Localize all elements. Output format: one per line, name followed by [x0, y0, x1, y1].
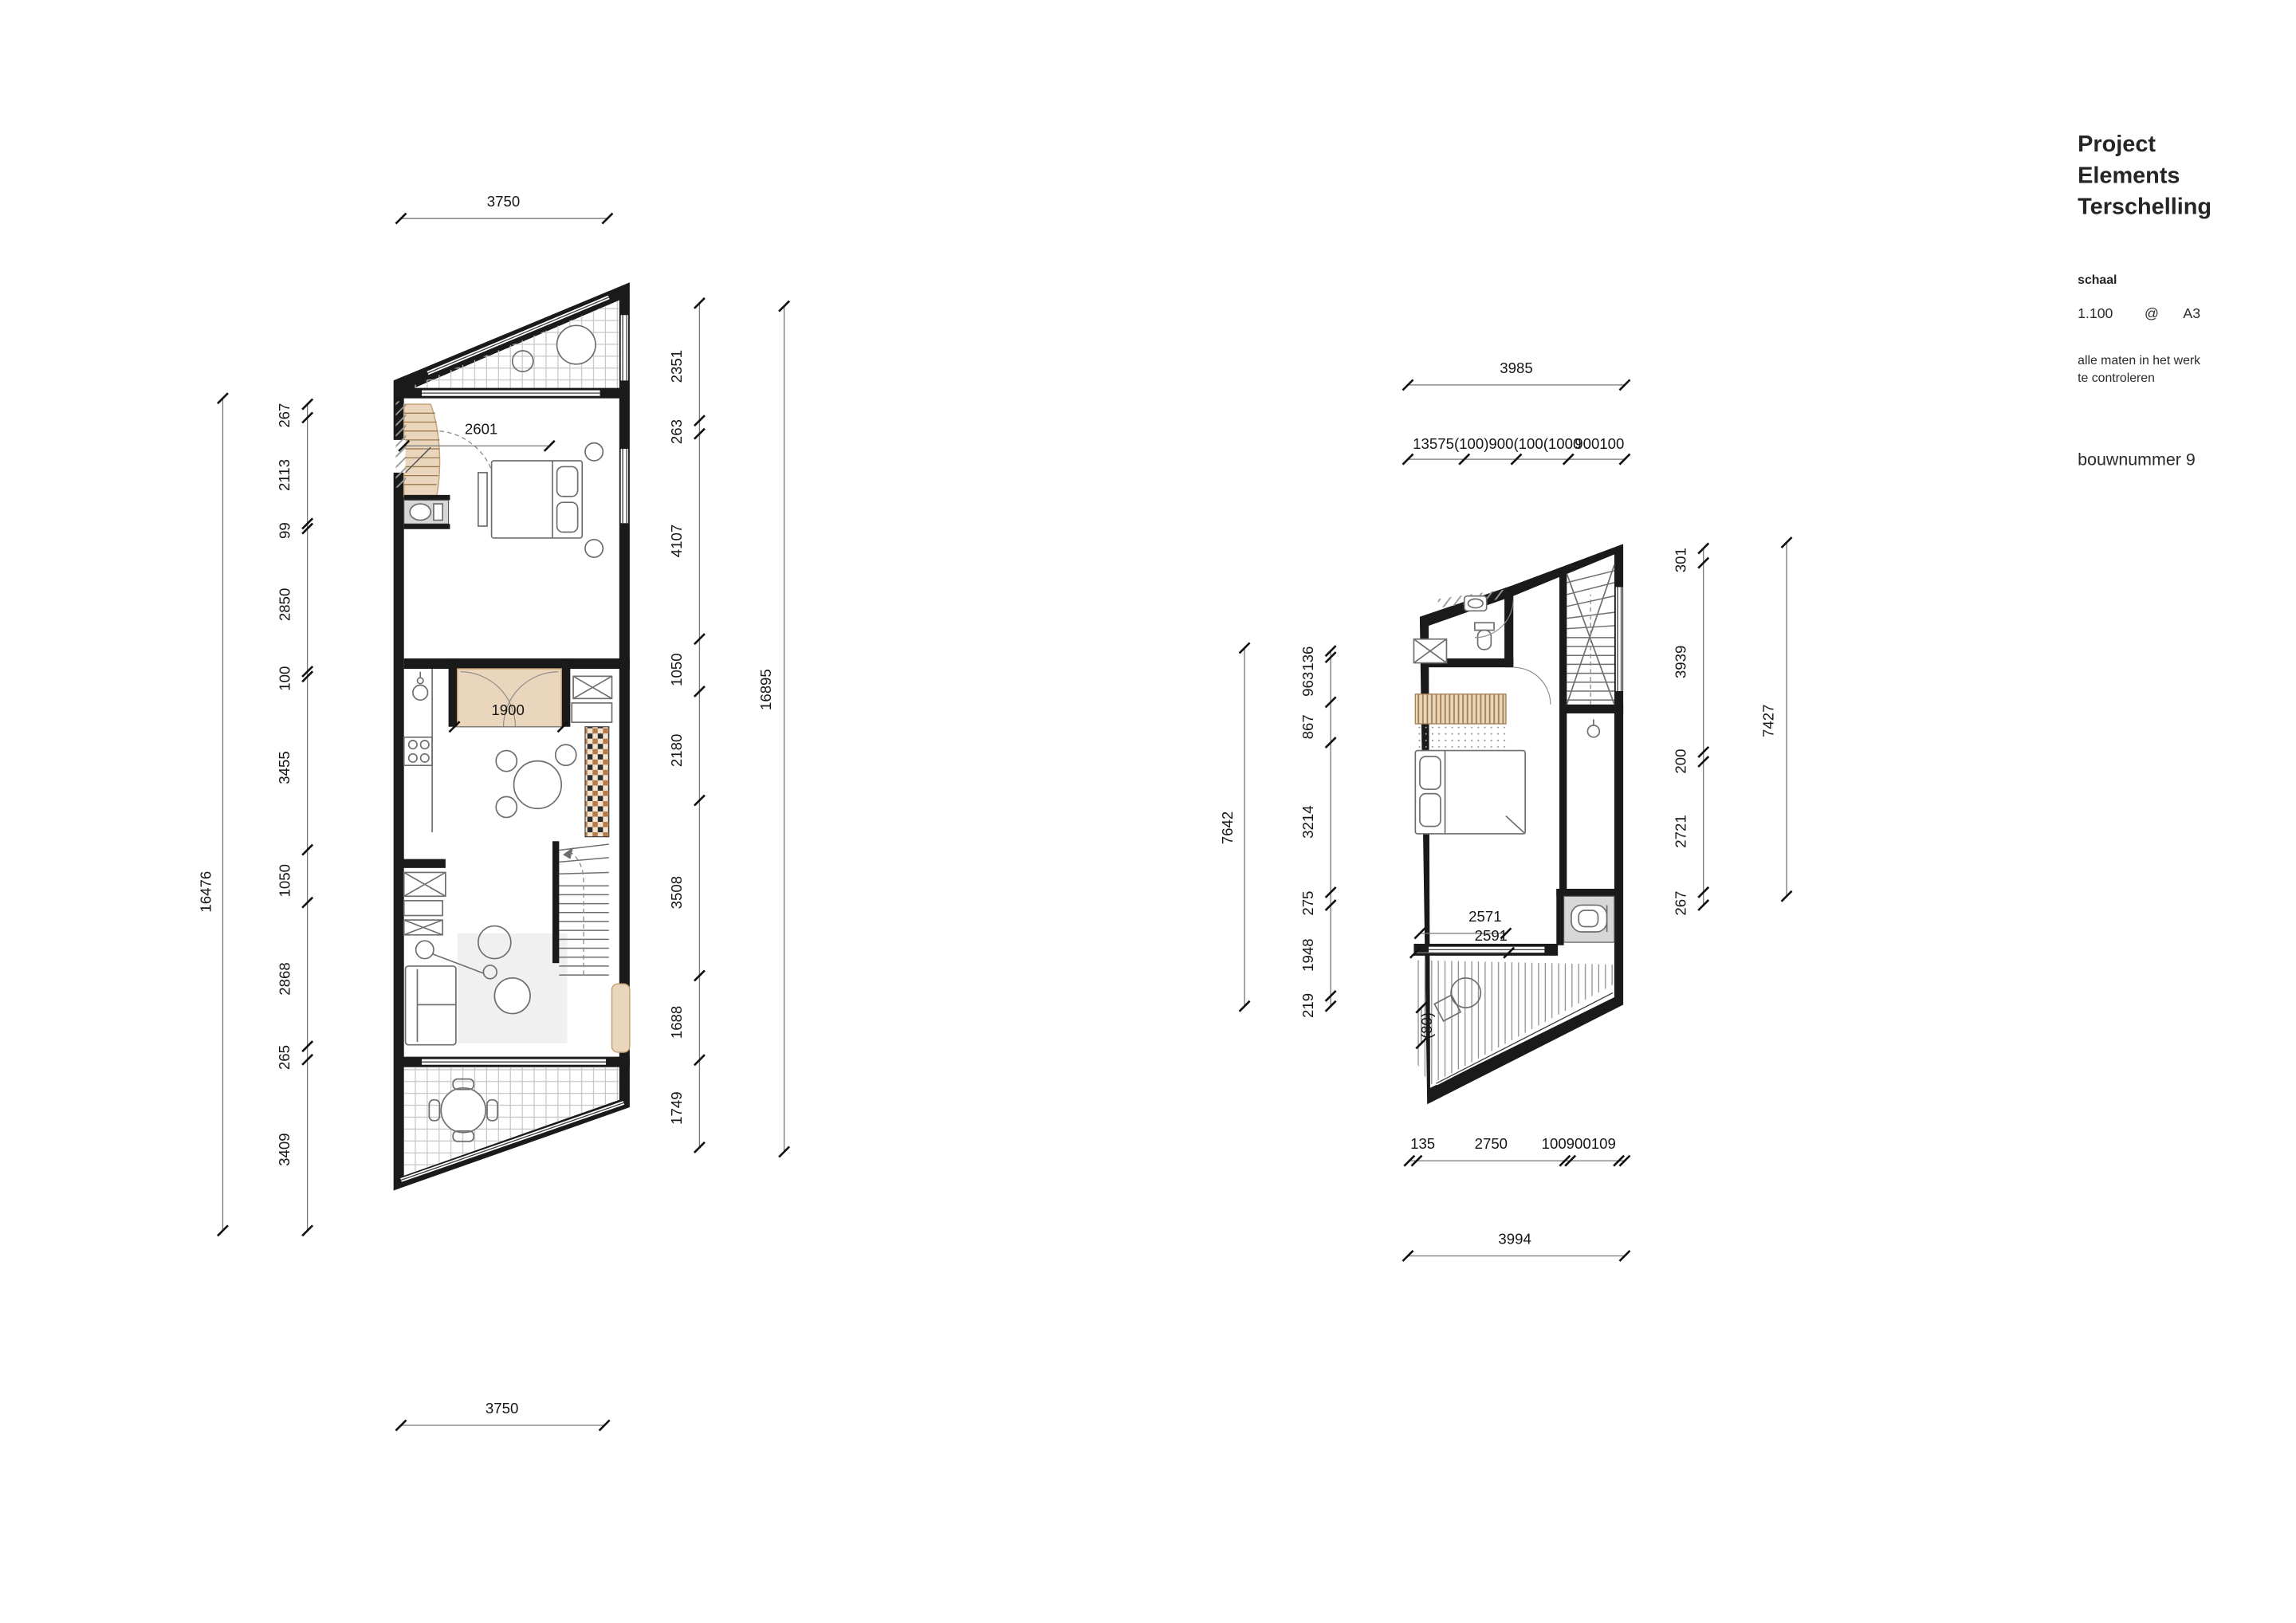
- project-title-line2: Elements: [2078, 163, 2180, 188]
- rug: [1415, 727, 1507, 748]
- dim-label: 200: [1672, 749, 1689, 773]
- drawing-sheet: 3750375016476267211399285010034551050286…: [0, 0, 2296, 1623]
- balcony-table: [557, 325, 596, 364]
- scale-label: schaal: [2078, 273, 2117, 287]
- bedroom-wall: [404, 658, 630, 669]
- title-block: Project Elements Terschelling schaal 1.1…: [2078, 132, 2211, 469]
- project-title-line1: Project: [2078, 132, 2156, 157]
- dim-label: 13575(100)900(100(1000: [1413, 435, 1581, 452]
- dim-label: 3994: [1498, 1231, 1531, 1248]
- floorplan-drawing: 3750375016476267211399285010034551050286…: [0, 0, 2296, 1623]
- toilet: [1478, 631, 1492, 650]
- dim-label: 1688: [668, 1006, 685, 1039]
- dim-label: 2721: [1672, 815, 1689, 847]
- dim-label: 1050: [668, 653, 685, 686]
- dim-label: 2351: [668, 350, 685, 383]
- dim-label: 2180: [668, 734, 685, 767]
- dim-label: (80): [1418, 1012, 1435, 1039]
- dim-label: 2750: [1475, 1135, 1508, 1152]
- dim-label: 275: [1299, 891, 1316, 916]
- dim-label: 1900: [491, 701, 524, 718]
- side-table: [585, 540, 603, 557]
- cupboard: [612, 984, 630, 1052]
- bathroom-wall: [1504, 591, 1513, 667]
- dim-label: 135: [1410, 1135, 1435, 1152]
- dim-label: 100: [276, 666, 293, 691]
- dim-label: 136: [1299, 646, 1316, 671]
- dim-label: 2571: [1468, 908, 1501, 925]
- dim-label: 3455: [276, 751, 293, 784]
- dim-label: 900100: [1575, 435, 1624, 452]
- mosaic-strip: [585, 727, 609, 837]
- closet-wall: [1559, 713, 1567, 894]
- pillow: [1420, 794, 1441, 827]
- dining-table: [514, 761, 562, 809]
- dim-label: 219: [1299, 993, 1316, 1018]
- cabinet-box: [404, 901, 442, 916]
- dim-label: 100900109: [1542, 1135, 1616, 1152]
- side-table: [585, 443, 603, 461]
- dim-label: 267: [276, 403, 293, 428]
- dim-label: 16895: [757, 669, 774, 710]
- dim-label: 3939: [1672, 646, 1689, 678]
- dim-label: 1050: [276, 864, 293, 897]
- dim-label: 3508: [668, 876, 685, 909]
- dim-label: 3214: [1299, 805, 1316, 838]
- bouwnummer: bouwnummer 9: [2078, 450, 2196, 470]
- dim-label: 263: [668, 419, 685, 444]
- dim-label: 1749: [668, 1091, 685, 1124]
- dim-label: 3985: [1500, 360, 1532, 376]
- bed-bench: [478, 473, 487, 526]
- dim-label: 2601: [465, 420, 497, 437]
- dim-label: 1948: [1299, 938, 1316, 971]
- dim-label: 3750: [486, 1400, 518, 1417]
- dim-label: 7642: [1219, 811, 1236, 844]
- project-title-line3: Terschelling: [2078, 194, 2211, 219]
- coffee-table: [494, 978, 530, 1014]
- dim-label: 99: [276, 522, 293, 539]
- dim-label: 3750: [487, 193, 520, 210]
- cabinet-box: [572, 703, 611, 722]
- dim-label: 3409: [276, 1133, 293, 1165]
- terrace-table: [441, 1088, 486, 1133]
- ground-floor-plan: [392, 282, 630, 1190]
- dim-label: 4107: [668, 525, 685, 557]
- dim-label: 2113: [276, 459, 293, 491]
- at-symbol: @: [2145, 305, 2159, 321]
- note-line2: te controleren: [2078, 371, 2155, 385]
- stair-wall: [1559, 572, 1567, 713]
- dim-label: 963: [1299, 672, 1316, 697]
- dim-label: 867: [1299, 714, 1316, 739]
- dim-label: 2591: [1475, 927, 1508, 944]
- wall-stub: [396, 859, 445, 868]
- upper-floor-plan: [1413, 544, 1623, 1104]
- toilet: [1571, 905, 1607, 932]
- toilet-cistern: [434, 504, 442, 521]
- lamp-head: [416, 941, 434, 958]
- curved-stair: [404, 404, 440, 497]
- sofa: [406, 966, 456, 1045]
- dim-label: 267: [1672, 890, 1689, 915]
- dim-label: 7427: [1759, 705, 1776, 737]
- note-line1: alle maten in het werk: [2078, 354, 2200, 367]
- scale-value: 1.100: [2078, 305, 2113, 321]
- stair-wall: [552, 841, 559, 963]
- dim-label: 265: [276, 1045, 293, 1070]
- pillow: [557, 466, 578, 496]
- paper-size: A3: [2183, 305, 2200, 321]
- toilet-cistern: [1475, 623, 1494, 630]
- dim-label: 2868: [276, 962, 293, 995]
- pillow: [557, 502, 578, 532]
- toilet: [410, 504, 431, 521]
- pillow: [1420, 756, 1441, 789]
- dim-label: 2850: [276, 588, 293, 621]
- dim-label: 16476: [198, 871, 214, 913]
- dim-label: 301: [1672, 548, 1689, 572]
